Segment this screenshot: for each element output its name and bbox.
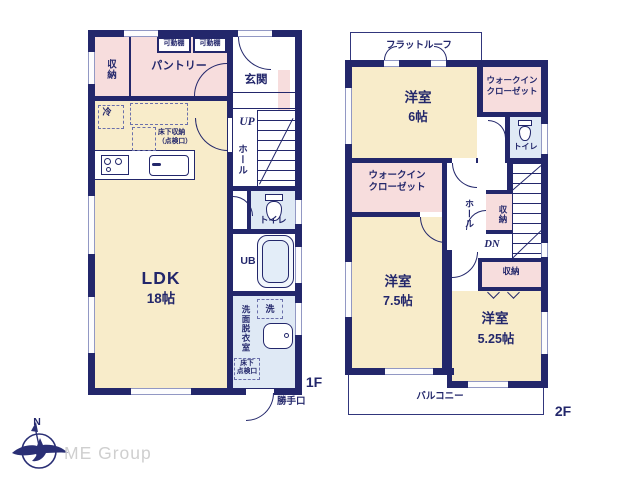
backdoor-label: 勝手口 <box>277 397 317 408</box>
toilet-label: トイレ <box>255 215 291 225</box>
wic-left-label: クローゼット <box>362 183 432 194</box>
wall <box>478 258 541 262</box>
door-arc-toilet-2f <box>488 120 506 138</box>
window-marker <box>131 388 191 395</box>
basin-faucet-icon <box>284 333 289 338</box>
window-marker <box>345 88 352 144</box>
closet-label: 収納 <box>101 50 115 88</box>
ldk-label: LDK <box>133 269 189 289</box>
underfloor-label: 床下収納 <box>158 129 196 137</box>
fridge-label: 冷 <box>100 107 114 117</box>
wic-top-label: クローゼット <box>486 87 538 97</box>
window-marker <box>295 200 302 224</box>
window-marker <box>541 124 548 154</box>
wall <box>442 163 447 212</box>
compass-n-label: N <box>30 417 44 429</box>
window-marker <box>88 297 95 353</box>
ub-label: UB <box>236 256 260 268</box>
underfloor-label: （点検口） <box>158 138 196 146</box>
bedroom75-size-label: 7.5帖 <box>375 294 421 308</box>
window-marker <box>295 303 302 335</box>
hall-label: ホール <box>233 138 246 182</box>
wall <box>95 96 233 101</box>
door-arc-hall <box>452 163 477 188</box>
entry-step-line <box>233 92 295 93</box>
entry-step-line <box>233 108 295 109</box>
entrance-door-opening <box>238 30 272 37</box>
window-marker <box>385 368 433 375</box>
flat-roof-label: フラットルーフ <box>386 41 448 52</box>
wall <box>477 67 483 117</box>
toilet-2f-label: トイレ <box>511 143 540 152</box>
storage-mid-label: 収納 <box>491 199 507 229</box>
wall <box>486 230 512 234</box>
floor-1f-label: 1F <box>300 375 328 391</box>
underfloor-storage-outline <box>132 127 156 151</box>
window-marker <box>541 243 548 257</box>
bedroom6-size-label: 6帖 <box>402 110 434 124</box>
hatch-label: 床下 <box>235 360 259 368</box>
window-marker <box>345 262 352 317</box>
ldk-size-label: 18帖 <box>137 291 185 306</box>
shoe-cabinet <box>278 70 290 110</box>
wall <box>345 60 548 67</box>
bedroom525-label: 洋室 <box>474 311 516 326</box>
door-arc-backdoor <box>246 393 274 421</box>
wall <box>227 37 233 96</box>
window-marker <box>541 312 548 354</box>
toilet-icon <box>265 194 283 201</box>
bathtub-icon-inner <box>262 240 289 283</box>
pantry-label: パントリー <box>139 60 219 72</box>
hall-2f-label: ホール <box>461 194 474 234</box>
window-marker <box>88 52 95 84</box>
window-marker <box>384 60 399 67</box>
window-marker <box>124 30 158 37</box>
door-arc-bedroom-525 <box>452 252 478 278</box>
faucet-icon <box>152 163 161 166</box>
wic-left-label: ウォークイン <box>362 171 432 182</box>
wall <box>233 229 295 234</box>
wall <box>483 112 541 117</box>
wall <box>233 186 295 191</box>
wic-top-label: ウォークイン <box>486 76 538 86</box>
window-marker <box>431 60 446 67</box>
bedroom525-size-label: 5.25帖 <box>467 332 525 346</box>
window-marker <box>468 381 508 388</box>
hall-ldk-opening <box>228 118 232 152</box>
brand-label: ME Group <box>64 443 214 464</box>
stove-icon <box>101 155 129 175</box>
balcony-label: バルコニー <box>409 392 471 403</box>
floor-2f-label: 2F <box>549 404 577 420</box>
window-marker <box>295 247 302 283</box>
door-arc-entrance <box>238 37 271 70</box>
bedroom6-label: 洋室 <box>399 90 437 105</box>
dn-label: DN <box>479 239 505 251</box>
bedroom75-label: 洋室 <box>377 274 419 289</box>
entrance-label: 玄関 <box>240 74 272 87</box>
storage-right-label: 収納 <box>496 267 526 277</box>
hatch-label: 点検口 <box>235 368 259 376</box>
washroom-label: 洗面脱衣室 <box>237 299 250 359</box>
window-marker <box>88 196 95 254</box>
closet-partition-line <box>129 37 131 96</box>
counter-outline <box>130 103 188 125</box>
laundry-label: 洗 <box>257 304 283 314</box>
wall <box>233 291 295 296</box>
up-label: UP <box>236 116 258 129</box>
wall <box>478 258 482 291</box>
shelf-label: 可動棚 <box>194 40 226 48</box>
shelf-label: 可動棚 <box>158 40 190 48</box>
floorplan-canvas: 可動棚 可動棚 収納 パントリー 玄関 UP ホール トイレ UB 冷 床下収納… <box>0 0 640 480</box>
